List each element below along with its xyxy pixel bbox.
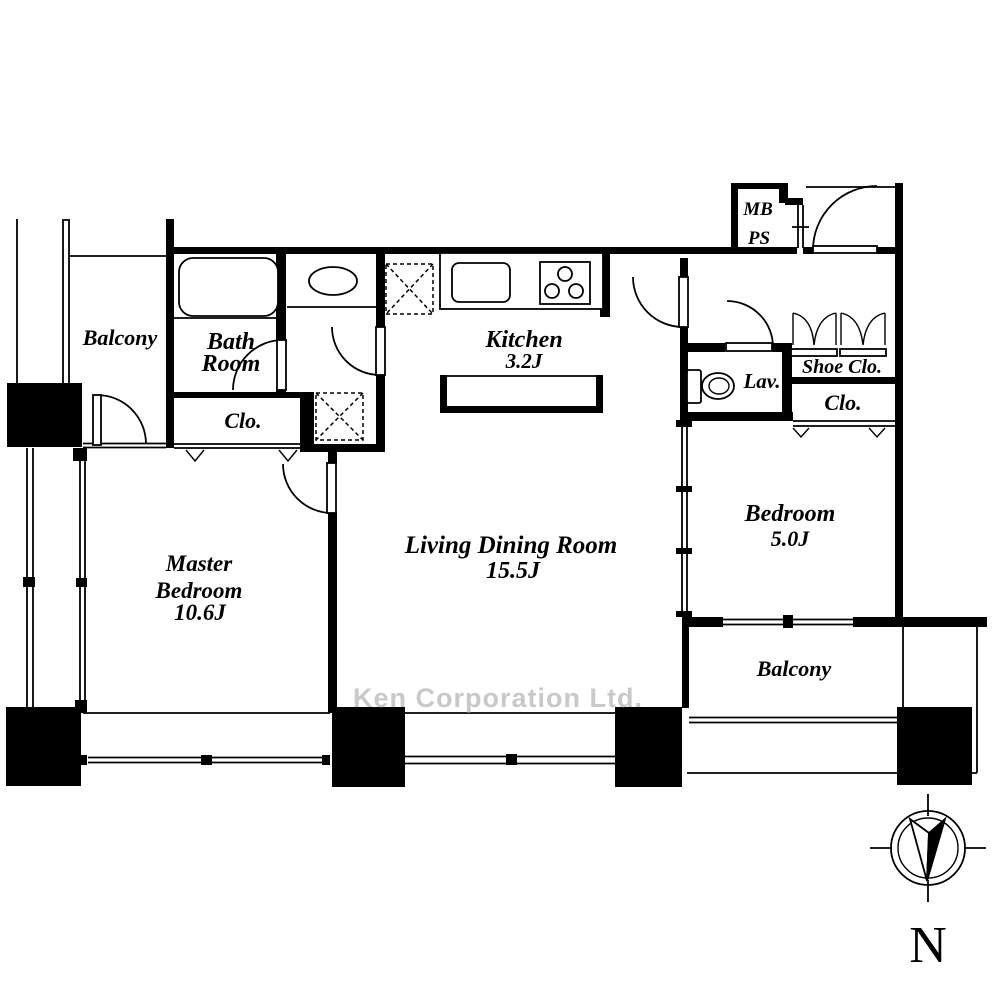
label-living-dining: Living Dining Room — [404, 532, 618, 559]
wall-segment — [376, 250, 385, 327]
washroom-door-arc — [332, 327, 380, 375]
entrance-door-leaf — [813, 246, 877, 253]
window-mullion — [783, 615, 793, 628]
meterbox-door — [792, 205, 809, 248]
washroom-door-leaf — [376, 327, 385, 375]
entrance-door-arc — [813, 186, 877, 250]
closet-east-sliding-door — [793, 421, 895, 426]
watermark: Ken Corporation Ltd. — [353, 683, 643, 713]
compass-north-label: N — [909, 917, 947, 974]
pillar — [615, 707, 682, 787]
window-mullion — [506, 754, 517, 765]
bathtub — [179, 258, 278, 316]
washer-space — [316, 393, 363, 440]
wall-segment — [682, 620, 689, 708]
sliding-door-stop — [676, 548, 692, 554]
balcony-door-leaf — [93, 395, 101, 445]
hall-door-arc — [633, 277, 683, 327]
balcony-west-railing — [62, 220, 70, 383]
label-master-line1: Master — [165, 551, 234, 576]
master-bedroom-door-arc — [283, 464, 332, 513]
window-mullion — [201, 755, 212, 765]
window-end-cap — [322, 755, 330, 765]
toilet-tank — [687, 370, 701, 403]
pillar — [6, 707, 81, 786]
window-end-cap — [80, 755, 87, 765]
master-bedroom-door-leaf — [327, 463, 336, 513]
label-bedroom-area: 5.0J — [771, 526, 811, 551]
label-kitchen-area: 3.2J — [505, 349, 544, 373]
balcony-south-railing — [689, 718, 897, 723]
wall-segment — [731, 183, 786, 189]
washbasin — [309, 267, 357, 295]
refrigerator-space — [386, 264, 433, 314]
wall-segment — [376, 373, 385, 452]
bifold-door-sill — [840, 349, 886, 356]
label-closet-west: Clo. — [224, 408, 261, 433]
label-meter-box-line2: PS — [747, 228, 770, 249]
window-mullion — [23, 577, 35, 587]
wall-segment — [688, 343, 725, 352]
wall-segment — [895, 183, 903, 627]
label-shoe-closet: Shoe Clo. — [802, 356, 882, 378]
balcony-door-arc — [97, 395, 146, 444]
bifold-door-panel — [841, 313, 885, 345]
wall-segment — [790, 377, 895, 384]
lavatory-door-leaf — [726, 343, 772, 351]
label-lavatory: Lav. — [742, 369, 780, 393]
label-living-dining-area: 15.5J — [486, 558, 541, 584]
compass-needle-right — [927, 819, 945, 881]
stove-burner — [558, 267, 572, 281]
lavatory-door-arc — [727, 301, 773, 347]
label-closet-east: Clo. — [824, 390, 861, 415]
wall-segment — [166, 392, 314, 398]
floorplan: N Balcony Bath Room Clo. Kitchen 3.2J Li… — [0, 0, 1000, 1000]
wall-segment — [300, 444, 385, 452]
label-balcony-south: Balcony — [756, 656, 832, 681]
label-bedroom: Bedroom — [744, 501, 836, 527]
wall-segment — [683, 412, 793, 421]
wall-segment — [328, 448, 337, 463]
wall-segment — [73, 448, 87, 461]
wall-segment — [803, 247, 813, 254]
hall-door-leaf — [679, 277, 688, 327]
kitchen-island-bottom — [440, 406, 603, 413]
kitchen-sink — [452, 263, 510, 302]
wall-segment — [676, 420, 692, 427]
compass-needle-left — [910, 819, 929, 881]
shoe-closet-bifold-doors — [791, 313, 886, 356]
closet-west-sliding-door — [174, 444, 310, 448]
stove-burner — [569, 284, 583, 298]
label-master-area: 10.6J — [174, 600, 227, 625]
closet-opening-mark — [793, 428, 809, 437]
wall-segment — [328, 512, 337, 713]
bifold-door-sill — [791, 349, 837, 356]
pillar — [897, 707, 972, 785]
wall-segment — [680, 258, 688, 277]
wall-segment — [853, 617, 987, 627]
window-mullion — [76, 578, 87, 587]
wall-segment — [300, 392, 314, 452]
pillar — [7, 383, 82, 447]
bath-door-leaf — [277, 340, 286, 390]
compass: N — [870, 794, 986, 974]
kitchen-island-right — [596, 375, 603, 413]
stove-burner — [545, 284, 559, 298]
bifold-door-panel — [793, 313, 836, 345]
wall-segment — [877, 247, 895, 254]
floorplan-svg: N Balcony Bath Room Clo. Kitchen 3.2J Li… — [0, 0, 1000, 1000]
closet-opening-mark — [186, 450, 204, 461]
closet-opening-mark — [869, 428, 885, 437]
label-meter-box-line1: MB — [742, 199, 773, 220]
label-balcony-west: Balcony — [82, 325, 158, 350]
sliding-door-stop — [676, 486, 692, 492]
wall-segment — [785, 198, 803, 205]
sliding-door-stop — [676, 611, 692, 617]
refrigerator-space-cross — [386, 264, 433, 314]
wall-segment — [731, 183, 738, 254]
bedroom-sliding-door — [682, 427, 687, 613]
pillar — [332, 707, 405, 787]
washer-space-cross — [316, 393, 363, 440]
closet-opening-mark — [279, 450, 297, 461]
label-bath-line2: Room — [201, 351, 261, 377]
